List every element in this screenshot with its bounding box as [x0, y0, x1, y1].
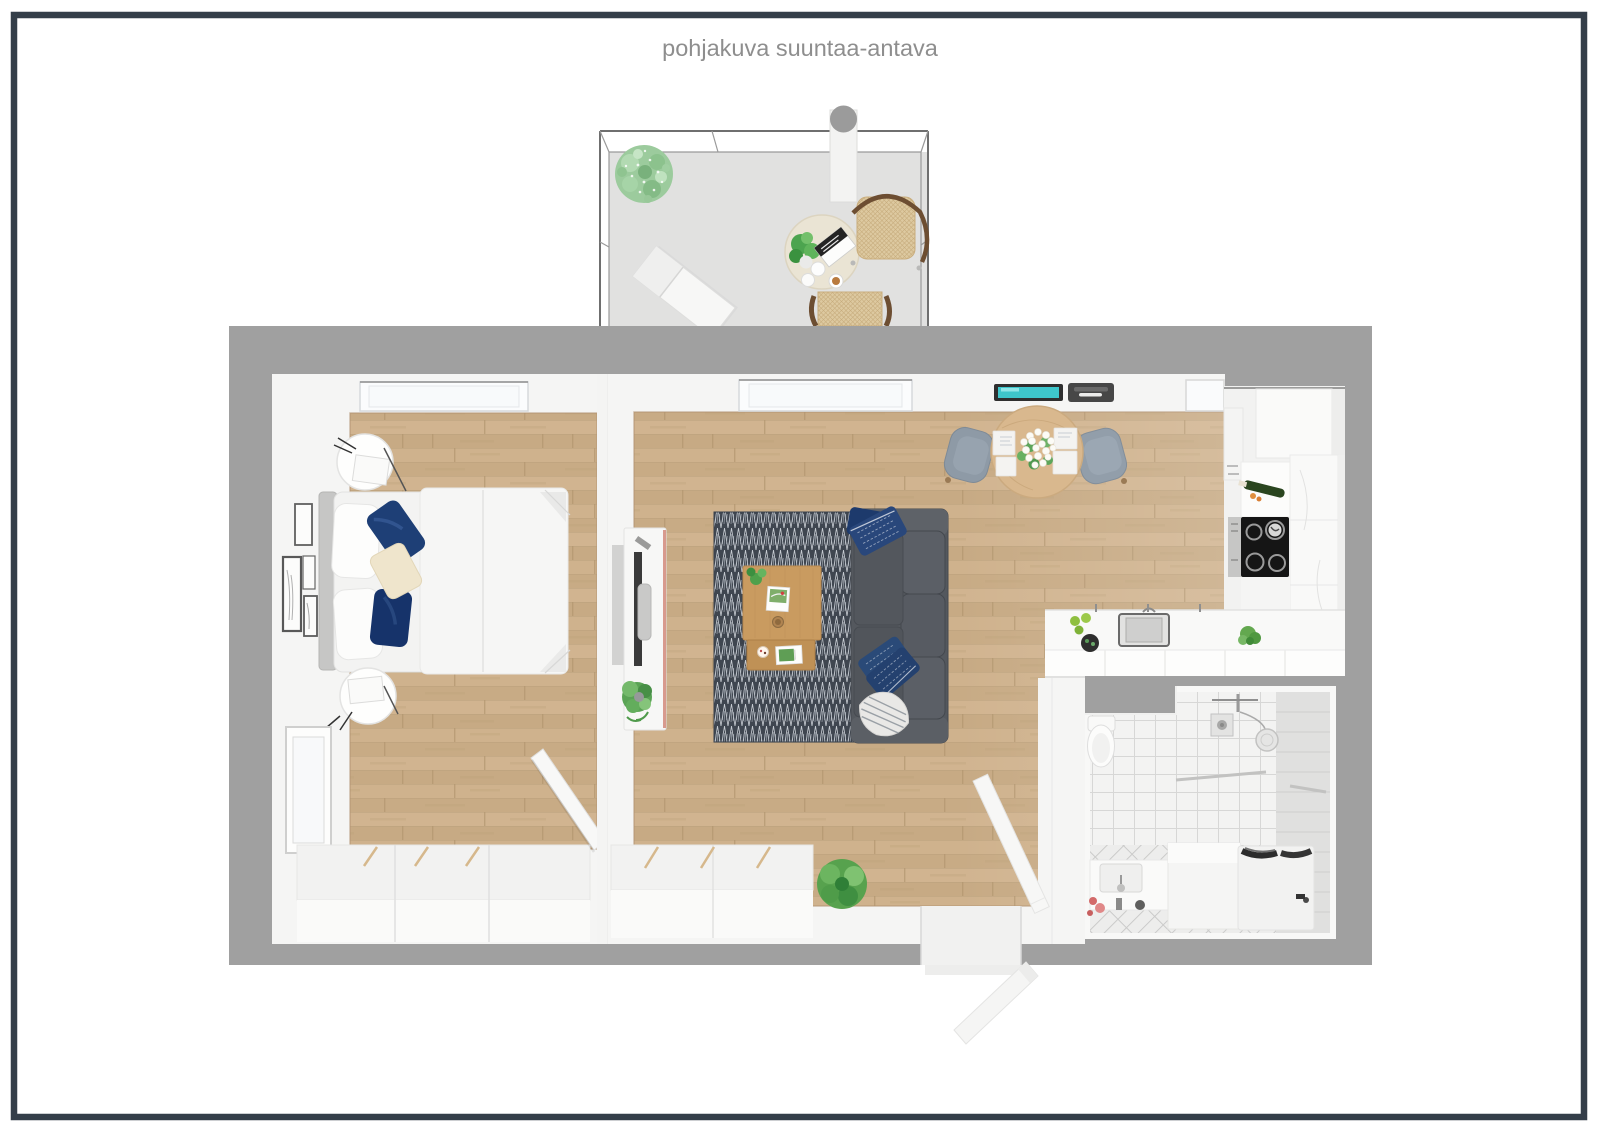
svg-text:pohjakuva suuntaa-antava: pohjakuva suuntaa-antava [662, 35, 939, 61]
